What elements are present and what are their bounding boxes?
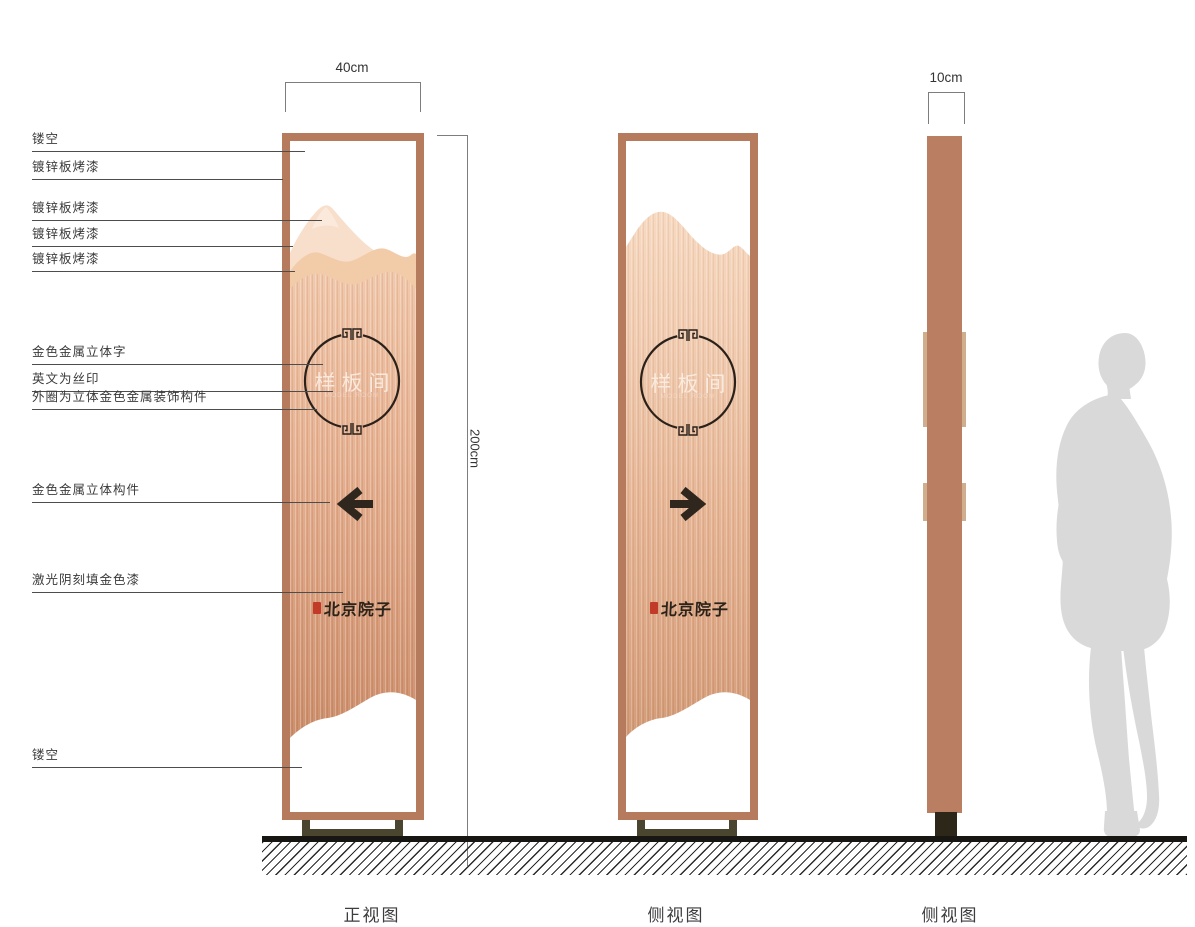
annotation-hollow-bottom: 镂空 [32,747,302,768]
annotation-galvanized-paint-1: 镀锌板烤漆 [32,159,283,180]
ground-hatching [262,842,1187,875]
annotation-outer-ring-gold-component: 外圈为立体金色金属装饰构件 [32,389,317,410]
dimension-10cm-tick-right [964,92,965,124]
annotation-gold-metal-component: 金色金属立体构件 [32,482,330,503]
design-canvas: 40cm 10cm 200cm [0,0,1195,927]
dimension-10cm-tick-left [928,92,929,124]
arrow-left-icon [336,485,374,522]
dimension-200cm-label: 200cm [468,426,483,472]
annotation-gold-metal-letters: 金色金属立体字 [32,344,323,365]
dimension-200cm-top-tick [437,135,468,136]
meander-ornament-top-icon [678,329,698,342]
dimension-40cm-label: 40cm [322,60,382,75]
dimension-10cm-label: 10cm [916,70,976,85]
human-silhouette [1047,333,1192,838]
annotation-galvanized-paint-3: 镀锌板烤漆 [32,226,293,247]
dimension-40cm-tick-left [285,82,286,112]
meander-ornament-top-icon [342,328,362,341]
annotation-hollow-top: 镂空 [32,131,305,152]
brand-logo: 北京院子 [313,596,392,620]
view-label-side-2: 侧视图 [910,901,990,926]
profile-sign-base [935,812,957,838]
silhouette-feet [1104,811,1140,837]
brand-logo: 北京院子 [650,596,729,620]
side-sign-base [637,819,737,836]
arrow-right-icon [669,485,707,522]
annotation-galvanized-paint-4: 镀锌板烤漆 [32,251,295,272]
profile-sign-bar [927,136,962,813]
brand-logo-text: 北京院子 [323,596,392,620]
dimension-10cm-line [928,92,965,93]
side-sign-frame [618,133,758,820]
panel-name-english-text: MODEL ROOM [302,392,402,399]
ground-line [262,836,1187,842]
view-label-front: 正视图 [332,901,412,926]
meander-ornament-bottom-icon [342,422,362,435]
meander-ornament-bottom-icon [678,423,698,436]
front-sign-base [302,819,403,836]
annotation-laser-engraved-gold: 激光阴刻填金色漆 [32,572,343,593]
dimension-40cm-tick-right [420,82,421,112]
silhouette-neck [1103,373,1131,399]
seal-icon [313,602,321,614]
view-label-side-1: 侧视图 [636,901,716,926]
dimension-200cm-line [467,135,468,866]
annotation-galvanized-paint-2: 镀锌板烤漆 [32,200,322,221]
brand-logo-text: 北京院子 [660,596,729,620]
front-sign-frame [282,133,424,820]
panel-name-english-text: MODEL ROOM [638,393,738,400]
dimension-40cm-line [285,82,421,83]
seal-icon [650,602,658,614]
